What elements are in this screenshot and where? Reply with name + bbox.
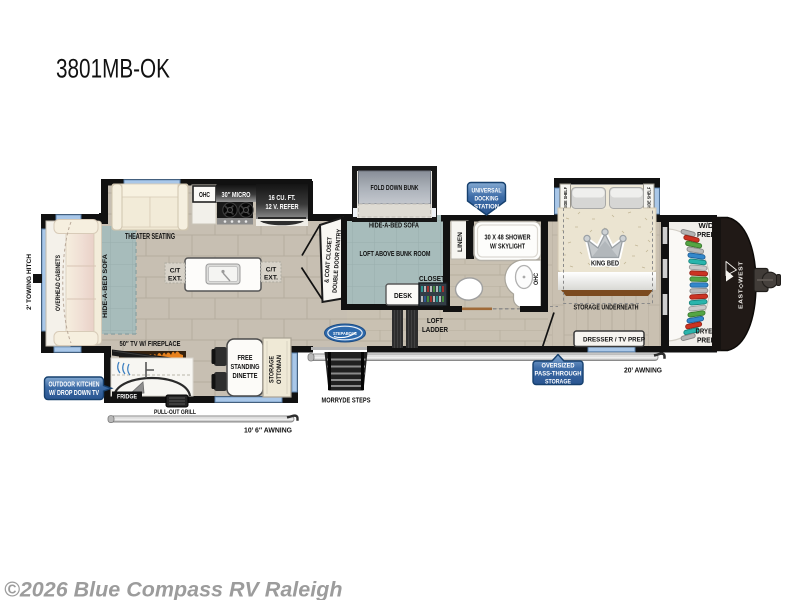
svg-text:STORAGE UNDERNEATH: STORAGE UNDERNEATH [574,305,639,312]
svg-text:DINETTE: DINETTE [233,373,258,380]
svg-text:OUTDOOR KITCHEN: OUTDOOR KITCHEN [49,382,100,389]
svg-text:30 X 48 SHOWER: 30 X 48 SHOWER [485,235,531,242]
svg-text:OVERSIZED: OVERSIZED [542,363,575,370]
svg-text:2' TOWING HITCH: 2' TOWING HITCH [26,254,33,310]
svg-text:3801MB-OK: 3801MB-OK [56,54,170,84]
svg-text:LOFT ABOVE BUNK ROOM: LOFT ABOVE BUNK ROOM [360,251,431,258]
svg-text:20’ AWNING: 20’ AWNING [624,366,662,375]
svg-text:STEPABOVE: STEPABOVE [333,331,357,336]
svg-text:THEATER SEATING: THEATER SEATING [125,232,175,241]
svg-text:30″ MICRO: 30″ MICRO [222,190,251,199]
svg-text:DOCKING: DOCKING [475,196,499,203]
svg-text:FOLD DOWN BUNK: FOLD DOWN BUNK [371,185,419,192]
svg-text:PULL-OUT GRILL: PULL-OUT GRILL [154,409,196,416]
svg-text:STORAGE: STORAGE [545,379,571,386]
svg-text:LOFT: LOFT [427,318,444,325]
svg-text:50″ TV W/ FIREPLACE: 50″ TV W/ FIREPLACE [120,339,181,348]
svg-text:PASS-THROUGH: PASS-THROUGH [535,371,582,378]
svg-text:DRESSER / TV PREP: DRESSER / TV PREP [583,337,645,344]
svg-text:HIDE-A-BED SOFA: HIDE-A-BED SOFA [369,223,419,230]
svg-text:12 V. REFER: 12 V. REFER [266,202,299,211]
svg-text:FRIDGE: FRIDGE [117,395,137,401]
svg-text:C/T: C/T [170,268,181,275]
svg-text:KING BED: KING BED [591,259,620,268]
svg-text:STANDING: STANDING [231,364,260,371]
svg-text:OHC: OHC [533,273,540,285]
svg-text:CLOSET: CLOSET [419,276,446,283]
svg-text:FREE: FREE [238,355,253,362]
svg-text:©2026 Blue Compass RV Raleigh: ©2026 Blue Compass RV Raleigh [4,578,342,600]
svg-text:LADDER: LADDER [422,327,448,334]
svg-text:UNIVERSAL: UNIVERSAL [472,188,502,195]
svg-text:OTTOMAN: OTTOMAN [276,355,283,384]
svg-text:DESK: DESK [394,293,412,300]
svg-text:HIDE-A-BED SOFA: HIDE-A-BED SOFA [102,254,109,318]
svg-text:EXT.: EXT. [168,276,182,283]
svg-text:OHC: OHC [199,192,210,199]
svg-text:STATION: STATION [474,204,499,211]
svg-text:16 CU. FT.: 16 CU. FT. [269,193,296,202]
svg-text:EAST◇WEST: EAST◇WEST [739,261,745,309]
svg-text:STORAGE: STORAGE [269,356,276,383]
svg-text:W/D: W/D [699,223,714,230]
svg-text:MORRYDE STEPS: MORRYDE STEPS [322,398,371,405]
svg-text:W/ SKYLIGHT: W/ SKYLIGHT [490,244,526,251]
svg-text:10’ 6″ AWNING: 10’ 6″ AWNING [244,426,292,435]
svg-text:C/T: C/T [266,267,277,274]
svg-text:LINEN: LINEN [457,232,464,252]
svg-text:EXT.: EXT. [264,275,278,282]
svg-text:OVERHEAD CABINETS: OVERHEAD CABINETS [55,255,62,311]
svg-text:W/ DROP DOWN TV: W/ DROP DOWN TV [49,390,99,397]
